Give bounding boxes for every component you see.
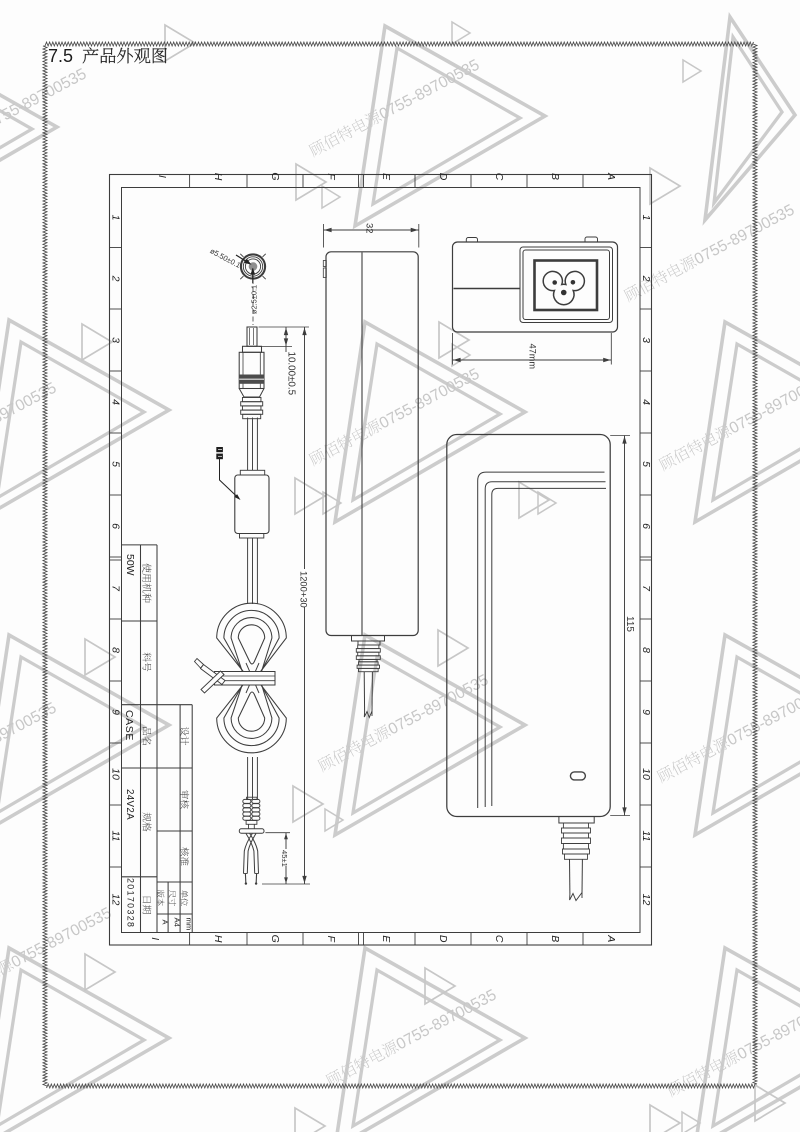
svg-text:2: 2 (110, 275, 122, 282)
svg-text:ø5.50±0.1: ø5.50±0.1 (209, 246, 243, 270)
svg-text:G: G (269, 172, 281, 180)
svg-text:2: 2 (640, 275, 652, 282)
svg-text:5: 5 (110, 461, 122, 467)
svg-text:10: 10 (640, 768, 652, 780)
svg-text:45±1: 45±1 (280, 850, 289, 867)
svg-text:CASE: CASE (123, 710, 135, 741)
svg-text:115: 115 (624, 616, 635, 632)
svg-text:20170328: 20170328 (126, 878, 136, 928)
svg-text:E: E (380, 935, 392, 943)
svg-text:H: H (212, 173, 224, 181)
svg-text:B: B (549, 173, 561, 180)
svg-text:5: 5 (640, 461, 652, 467)
svg-text:4: 4 (640, 399, 652, 405)
svg-text:12: 12 (110, 894, 122, 906)
svg-text:A: A (605, 934, 617, 942)
svg-text:1: 1 (640, 215, 652, 221)
svg-text:10.00±0.5: 10.00±0.5 (286, 352, 297, 396)
svg-text:E: E (380, 173, 392, 181)
svg-text:7: 7 (110, 585, 122, 592)
svg-text:ø2.5±0.1: ø2.5±0.1 (250, 285, 259, 314)
svg-text:24V2A: 24V2A (124, 789, 135, 820)
svg-text:50W: 50W (124, 554, 136, 576)
svg-text:8: 8 (110, 647, 122, 653)
svg-text:12: 12 (640, 894, 652, 906)
svg-text:A4: A4 (173, 918, 182, 927)
svg-text:I: I (156, 175, 168, 178)
svg-text:8: 8 (640, 647, 652, 653)
svg-text:47mm: 47mm (528, 344, 538, 370)
svg-text:3: 3 (640, 337, 652, 343)
svg-text:7.5: 7.5 (48, 46, 73, 66)
svg-text:A: A (605, 172, 617, 180)
svg-text:1200+30: 1200+30 (299, 571, 310, 608)
svg-text:F: F (325, 935, 337, 942)
svg-text:32: 32 (364, 223, 375, 234)
svg-text:9: 9 (640, 709, 652, 715)
svg-text:7: 7 (640, 585, 652, 592)
svg-text:11: 11 (110, 831, 122, 842)
svg-text:C: C (493, 173, 505, 181)
svg-text:9: 9 (110, 709, 122, 715)
svg-text:F: F (325, 173, 337, 180)
svg-text:mm: mm (185, 918, 194, 931)
svg-text:6: 6 (110, 523, 122, 529)
svg-text:10: 10 (110, 768, 122, 780)
svg-text:6: 6 (640, 523, 652, 529)
svg-text:I: I (149, 937, 161, 940)
svg-text:D: D (437, 935, 449, 943)
svg-text:D: D (437, 173, 449, 181)
svg-text:3: 3 (110, 337, 122, 343)
svg-text:G: G (269, 935, 281, 943)
svg-text:1: 1 (110, 215, 122, 221)
svg-text:B: B (549, 935, 561, 942)
svg-text:4: 4 (110, 399, 122, 405)
svg-text:C: C (493, 935, 505, 943)
svg-text:11: 11 (640, 831, 652, 842)
svg-text:H: H (212, 935, 224, 943)
